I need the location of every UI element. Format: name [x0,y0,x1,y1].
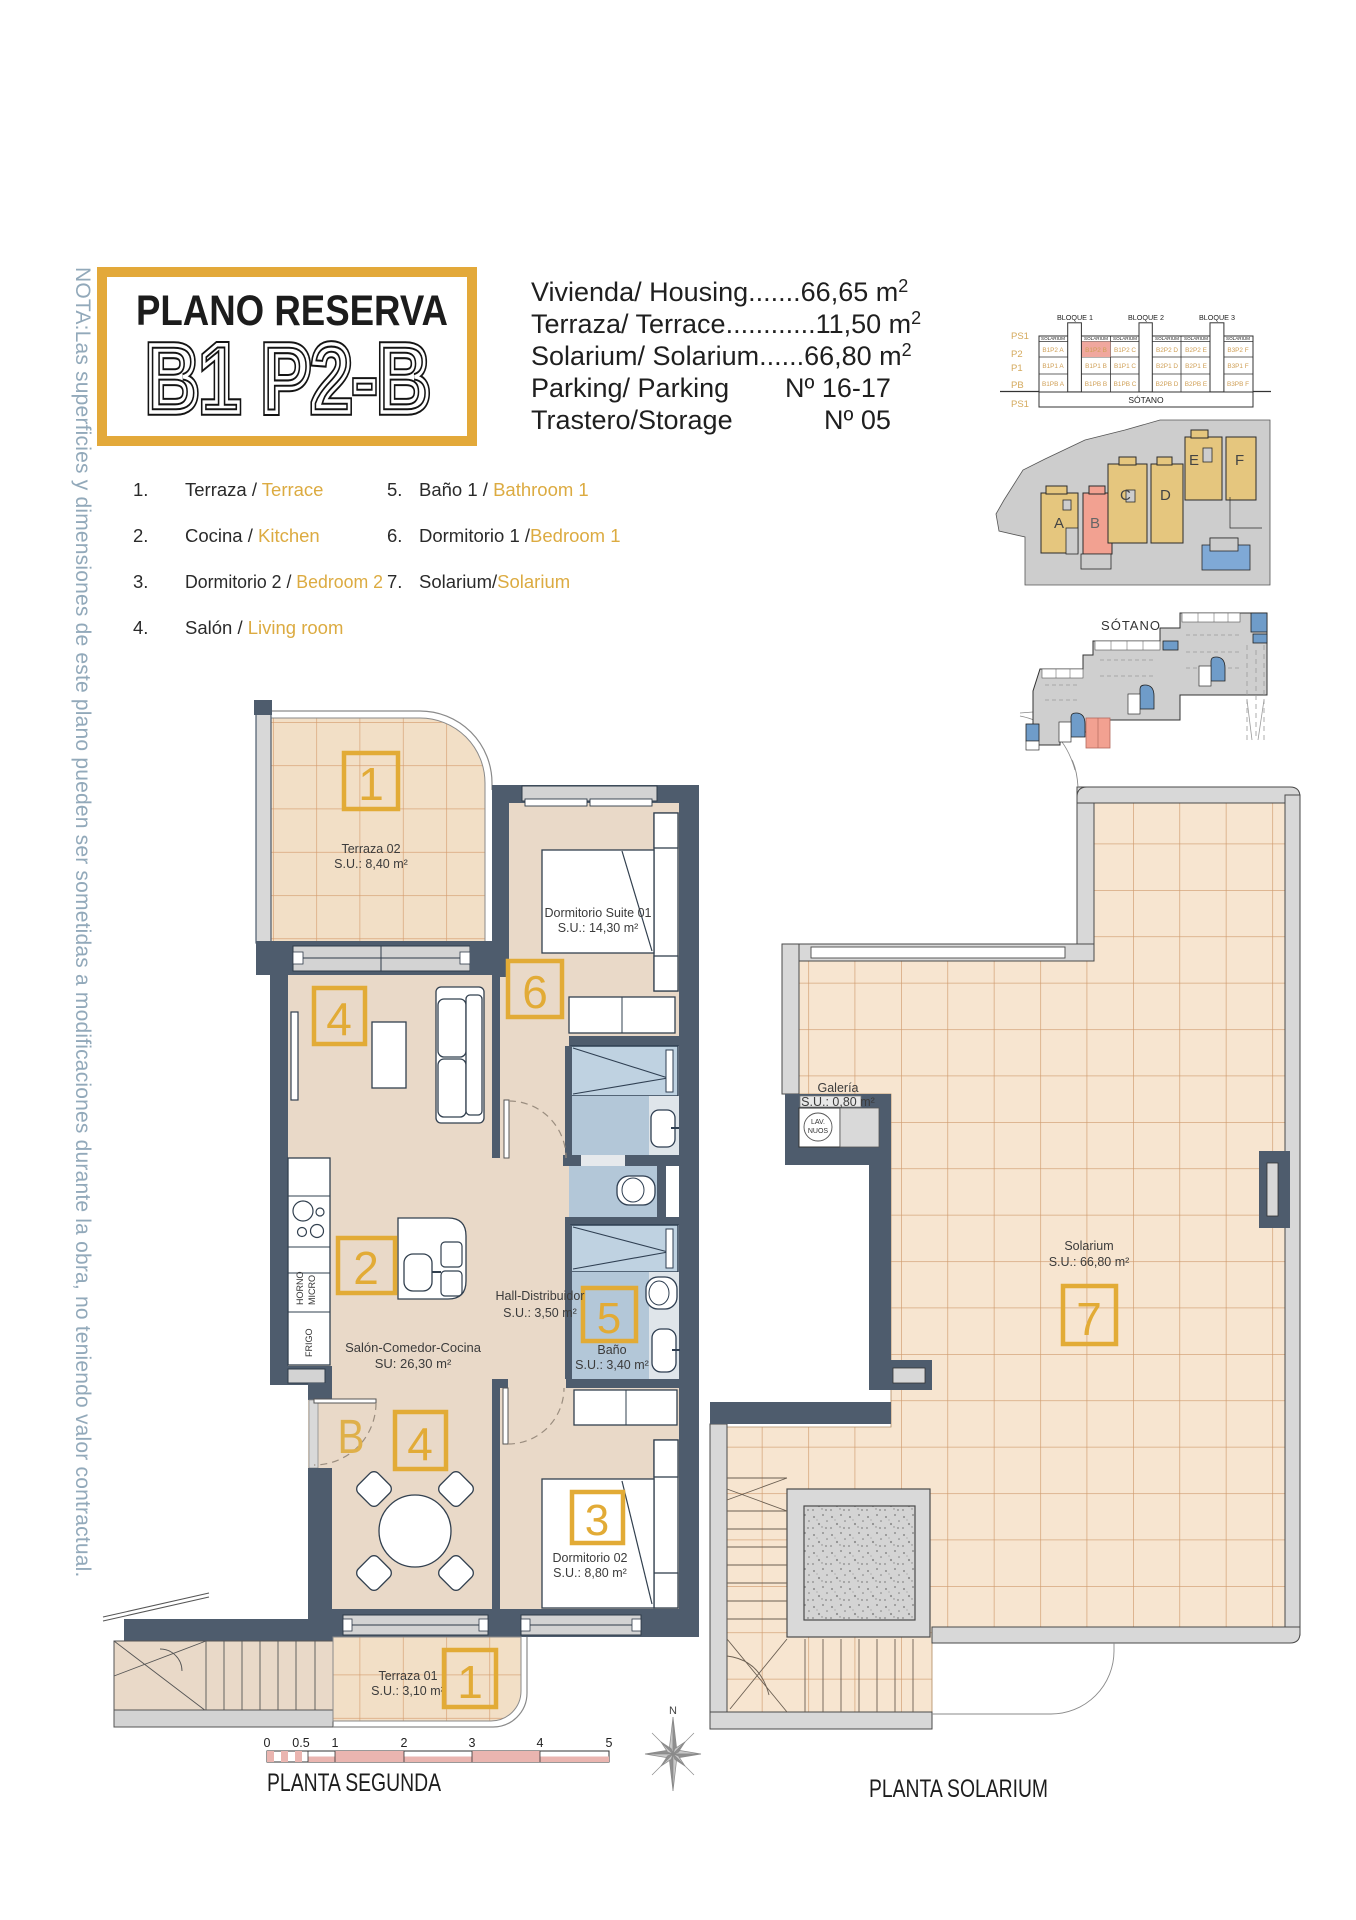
svg-text:B3PB F: B3PB F [1227,381,1249,388]
svg-text:PLANTA SOLARIUM: PLANTA SOLARIUM [869,1775,1048,1803]
svg-text:BLOQUE 3: BLOQUE 3 [1199,313,1235,322]
svg-text:PLANTA SEGUNDA: PLANTA SEGUNDA [267,1769,441,1797]
svg-text:Cocina / Kitchen: Cocina / Kitchen [185,525,320,546]
svg-text:Solarium/ Solarium......66,80: Solarium/ Solarium......66,80 m2 [531,340,912,371]
svg-text:2: 2 [401,1736,408,1750]
svg-text:1: 1 [358,758,384,810]
svg-text:Vivienda/ Housing.......66,65: Vivienda/ Housing.......66,65 m2 [531,276,908,307]
svg-text:Trastero/Storage: Trastero/Storage [531,405,733,435]
svg-text:Nº 05: Nº 05 [824,405,891,435]
svg-text:BLOQUE 2: BLOQUE 2 [1128,313,1164,322]
svg-text:MICRO: MICRO [307,1275,317,1305]
svg-text:B: B [338,1411,365,1464]
svg-text:S.U.: 66,80 m²: S.U.: 66,80 m² [1049,1255,1130,1269]
svg-text:Hall-Distribuidor: Hall-Distribuidor [496,1289,585,1303]
svg-text:P2: P2 [1011,349,1023,360]
svg-text:7.: 7. [387,571,402,592]
svg-text:B1P2 B: B1P2 B [1085,347,1107,354]
svg-text:SOLARIUM: SOLARIUM [1184,336,1208,341]
svg-text:N: N [669,1705,677,1717]
svg-text:NOTA:Las superficies y dimensi: NOTA:Las superficies y dimensiones de es… [71,267,94,1577]
svg-text:5: 5 [597,1294,621,1343]
svg-text:5.: 5. [387,479,402,500]
svg-text:F: F [1235,452,1244,469]
svg-text:1: 1 [332,1736,339,1750]
svg-text:Salón / Living room: Salón / Living room [185,617,343,638]
svg-text:PS1: PS1 [1011,331,1029,342]
svg-text:Baño: Baño [597,1343,626,1357]
svg-text:Dormitorio 2 / Bedroom 2: Dormitorio 2 / Bedroom 2 [185,571,383,592]
svg-text:Salón-Comedor-Cocina: Salón-Comedor-Cocina [345,1340,482,1355]
svg-text:1: 1 [457,1656,483,1708]
svg-text:2.: 2. [133,525,148,546]
svg-text:C: C [1120,487,1131,504]
svg-text:Parking/ Parking: Parking/ Parking [531,373,729,403]
svg-text:0: 0 [264,1736,271,1750]
svg-text:B3P1 F: B3P1 F [1227,363,1248,370]
svg-text:PS1: PS1 [1011,399,1029,410]
svg-text:A: A [1054,515,1064,532]
svg-text:Dormitorio 02: Dormitorio 02 [552,1551,627,1565]
svg-text:6: 6 [522,966,548,1018]
svg-text:B1P1 C: B1P1 C [1114,363,1136,370]
svg-text:7: 7 [1076,1293,1102,1345]
svg-text:S.U.: 3,50 m²: S.U.: 3,50 m² [503,1306,577,1320]
svg-text:HORNO: HORNO [295,1272,305,1306]
svg-text:3.: 3. [133,571,148,592]
svg-text:Solarium/Solarium: Solarium/Solarium [419,571,570,592]
svg-text:S.U.: 3,10 m²: S.U.: 3,10 m² [371,1684,445,1698]
svg-text:SOLARIUM: SOLARIUM [1226,336,1250,341]
svg-text:S.U.: 8,80 m²: S.U.: 8,80 m² [553,1566,627,1580]
svg-text:D: D [1160,487,1171,504]
svg-text:NUOS: NUOS [808,1128,829,1135]
svg-text:LAV.: LAV. [811,1119,825,1126]
svg-text:SOLARIUM: SOLARIUM [1041,336,1065,341]
svg-text:FRIGO: FRIGO [304,1329,314,1358]
svg-text:P1: P1 [1011,363,1023,374]
svg-text:B1P2 C: B1P2 C [1114,347,1136,354]
svg-text:4.: 4. [133,617,148,638]
svg-text:B2P2 D: B2P2 D [1156,347,1178,354]
svg-text:4: 4 [326,993,352,1045]
svg-text:S.U.: 0,80 m²: S.U.: 0,80 m² [801,1095,875,1109]
svg-text:B2P1 D: B2P1 D [1156,363,1178,370]
svg-text:Galería: Galería [818,1081,859,1095]
svg-text:BLOQUE 1: BLOQUE 1 [1057,313,1093,322]
svg-text:4: 4 [407,1418,433,1470]
svg-text:3: 3 [585,1496,609,1545]
svg-text:B1 P2-B: B1 P2-B [146,324,431,433]
svg-text:B3P2 F: B3P2 F [1227,347,1248,354]
svg-text:Terraza 02: Terraza 02 [341,842,400,856]
svg-text:4: 4 [537,1736,544,1750]
svg-text:S.U.: 8,40 m²: S.U.: 8,40 m² [334,857,408,871]
svg-text:B: B [1090,515,1100,532]
svg-text:2: 2 [353,1242,379,1294]
svg-text:B2P2 E: B2P2 E [1185,347,1207,354]
svg-text:Terraza / Terrace: Terraza / Terrace [185,479,323,500]
svg-text:B2PB E: B2PB E [1185,381,1207,388]
svg-text:PB: PB [1011,380,1024,391]
svg-text:Dormitorio Suite 01: Dormitorio Suite 01 [545,906,652,920]
svg-text:SOLARIUM: SOLARIUM [1155,336,1179,341]
svg-text:6.: 6. [387,525,402,546]
svg-text:Terraza/ Terrace............11: Terraza/ Terrace............11,50 m2 [531,308,921,339]
svg-text:0.5: 0.5 [292,1736,309,1750]
svg-text:Dormitorio 1 /Bedroom 1: Dormitorio 1 /Bedroom 1 [419,525,621,546]
svg-text:SÓTANO: SÓTANO [1128,395,1164,405]
svg-text:S.U.: 3,40 m²: S.U.: 3,40 m² [575,1358,649,1372]
svg-text:B1P1 A: B1P1 A [1042,363,1064,370]
svg-text:5: 5 [606,1736,613,1750]
svg-text:3: 3 [469,1736,476,1750]
svg-text:Baño 1 / Bathroom 1: Baño 1 / Bathroom 1 [419,479,589,500]
svg-text:1.: 1. [133,479,148,500]
svg-text:SOLARIUM: SOLARIUM [1113,336,1137,341]
svg-text:B1PB C: B1PB C [1114,381,1137,388]
svg-text:SOLARIUM: SOLARIUM [1084,336,1108,341]
svg-text:B1PB A: B1PB A [1042,381,1065,388]
svg-text:Terraza 01: Terraza 01 [378,1669,437,1683]
svg-text:B2P1 E: B2P1 E [1185,363,1207,370]
svg-text:SU: 26,30 m²: SU: 26,30 m² [375,1356,452,1371]
svg-text:B2PB D: B2PB D [1156,381,1179,388]
svg-text:Solarium: Solarium [1064,1239,1113,1253]
svg-text:S.U.: 14,30 m²: S.U.: 14,30 m² [558,921,639,935]
svg-text:E: E [1189,452,1199,469]
svg-text:B1P1 B: B1P1 B [1085,363,1107,370]
svg-text:Nº 16-17: Nº 16-17 [785,373,891,403]
svg-text:B1P2 A: B1P2 A [1042,347,1064,354]
svg-text:B1PB B: B1PB B [1085,381,1107,388]
svg-text:SÓTANO: SÓTANO [1101,618,1161,633]
